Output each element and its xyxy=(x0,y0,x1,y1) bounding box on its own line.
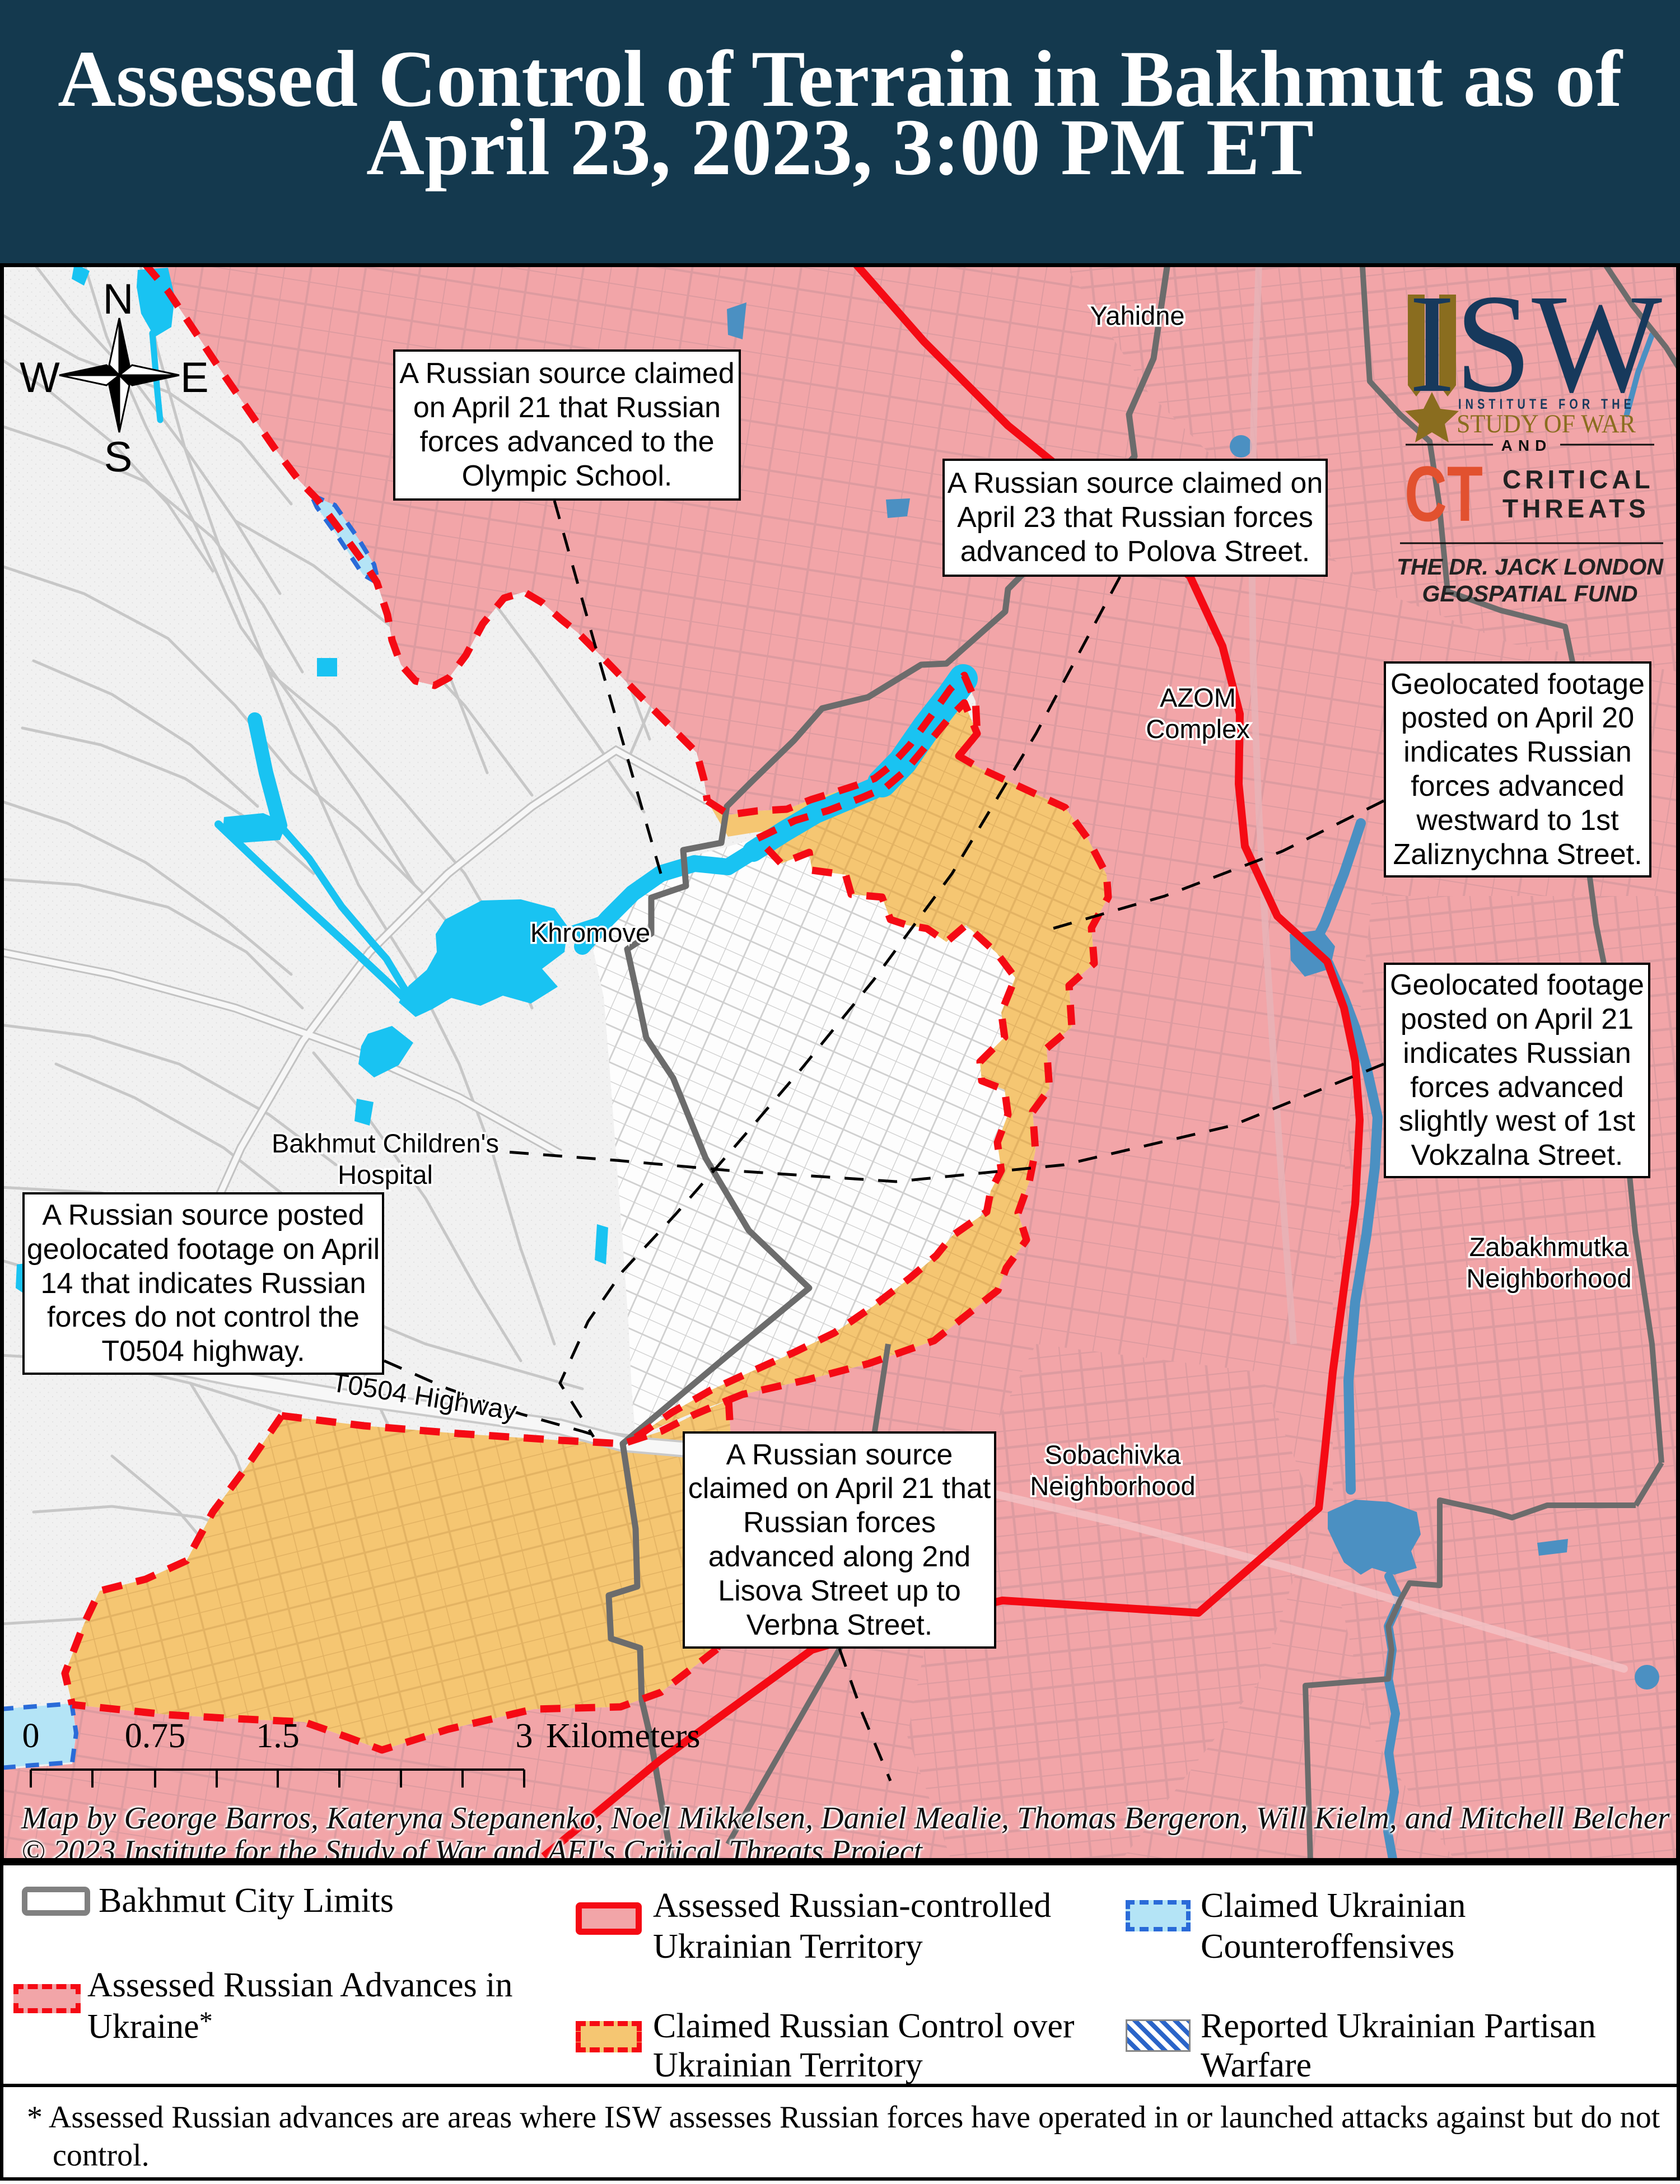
svg-text:N: N xyxy=(103,276,134,323)
svg-text:Complex: Complex xyxy=(1146,714,1249,744)
svg-text:Khromove: Khromove xyxy=(530,918,650,948)
svg-text:3: 3 xyxy=(516,1717,533,1755)
svg-text:AZOM: AZOM xyxy=(1160,683,1236,712)
svg-text:CT: CT xyxy=(1404,450,1483,538)
svg-text:THE DR. JACK LONDON: THE DR. JACK LONDON xyxy=(1397,554,1664,580)
svg-text:Neighborhood: Neighborhood xyxy=(1030,1471,1195,1501)
svg-text:GEOSPATIAL FUND: GEOSPATIAL FUND xyxy=(1422,581,1638,606)
svg-text:0: 0 xyxy=(22,1717,40,1755)
svg-text:CRITICAL: CRITICAL xyxy=(1502,465,1654,494)
svg-text:Bakhmut Children's: Bakhmut Children's xyxy=(272,1128,499,1158)
svg-text:Sobachivka: Sobachivka xyxy=(1045,1440,1182,1469)
svg-text:Yahidne: Yahidne xyxy=(1090,301,1185,330)
svg-text:S: S xyxy=(104,433,133,481)
svg-text:W: W xyxy=(20,354,60,402)
svg-text:Neighborhood: Neighborhood xyxy=(1466,1263,1631,1293)
svg-text:E: E xyxy=(180,354,209,402)
svg-text:STUDY OF WAR: STUDY OF WAR xyxy=(1457,409,1636,438)
svg-text:0.75: 0.75 xyxy=(125,1717,186,1755)
svg-text:1.5: 1.5 xyxy=(256,1717,300,1755)
svg-text:Hospital: Hospital xyxy=(338,1160,433,1189)
svg-text:Zabakhmutka: Zabakhmutka xyxy=(1469,1232,1630,1262)
svg-text:AND: AND xyxy=(1501,437,1552,454)
svg-text:THREATS: THREATS xyxy=(1502,494,1650,523)
svg-text:Kilometers: Kilometers xyxy=(546,1717,701,1755)
